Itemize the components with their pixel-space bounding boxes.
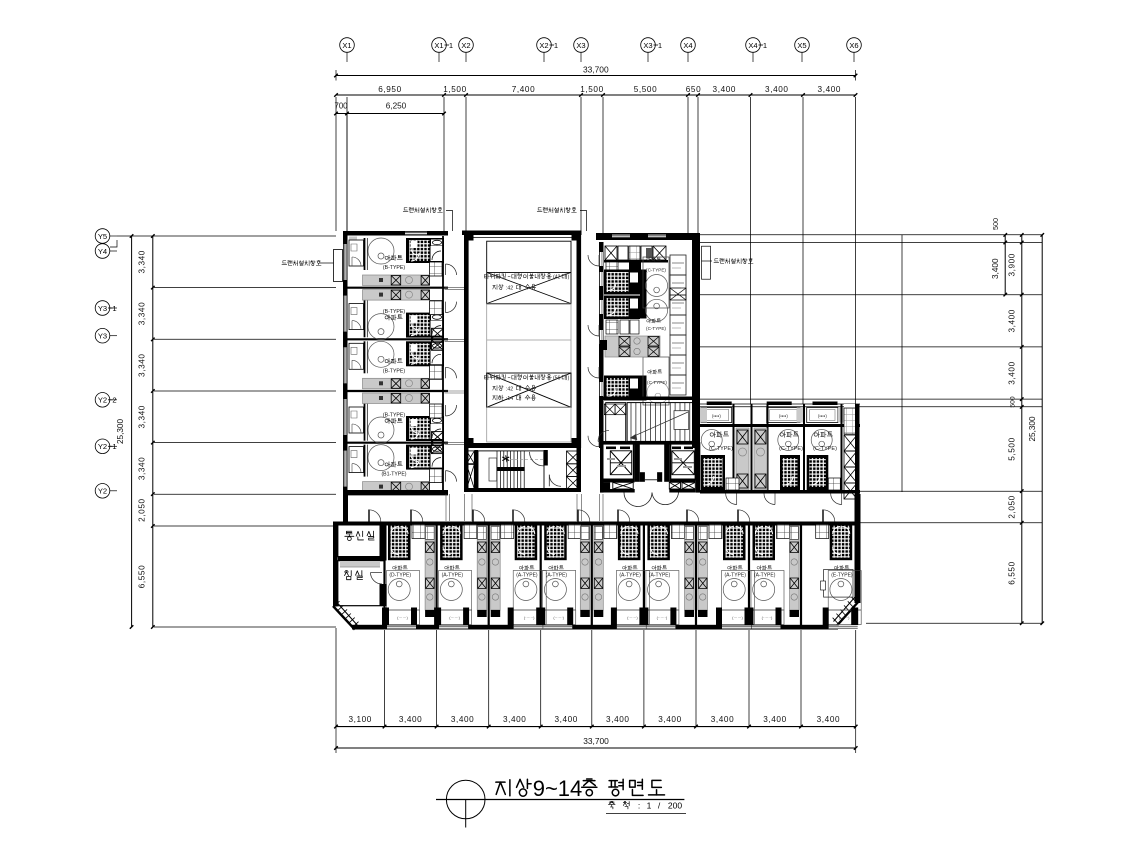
svg-text:(······): (······) [553,615,564,620]
svg-text:25,300: 25,300 [1028,416,1037,441]
svg-text:5,500: 5,500 [634,85,658,94]
svg-text:(C-TYPE): (C-TYPE) [647,380,667,385]
svg-text:(B-TYPE): (B-TYPE) [383,309,405,315]
svg-text:(A-TYPE): (A-TYPE) [754,573,776,579]
svg-text:(A-TYPE): (A-TYPE) [546,573,568,579]
svg-text:500: 500 [1009,396,1016,408]
svg-text:(C-TYPE): (C-TYPE) [709,446,733,452]
svg-text::14: :14 [506,396,513,402]
svg-text:6,250: 6,250 [386,102,407,111]
svg-text:3,400: 3,400 [399,715,423,724]
svg-text:(······): (······) [524,615,535,620]
svg-text::42: :42 [506,285,513,291]
svg-text:): ) [568,275,570,281]
svg-text:3,400: 3,400 [711,715,735,724]
svg-text::42: :42 [506,386,513,392]
svg-text:3,340: 3,340 [138,302,147,326]
svg-text:3,400: 3,400 [765,85,789,94]
svg-text:3,340: 3,340 [138,250,147,274]
svg-text:650: 650 [686,85,701,94]
svg-text:X3: X3 [643,41,652,50]
svg-text::: : [638,801,640,811]
svg-text:(A-TYPE): (A-TYPE) [516,573,538,579]
svg-text:3,400: 3,400 [658,715,682,724]
svg-text:3,340: 3,340 [138,353,147,377]
svg-text:X2: X2 [461,41,470,50]
svg-text:3,340: 3,340 [138,405,147,429]
svg-text:3,400: 3,400 [606,715,630,724]
svg-text:3,400: 3,400 [1007,309,1016,333]
svg-text:(▪▪▪▪): (▪▪▪▪) [779,414,788,419]
svg-text:X6: X6 [849,41,858,50]
svg-text:Y2: Y2 [98,396,107,405]
svg-text:25,300: 25,300 [116,419,125,444]
svg-text:(B1-TYPE): (B1-TYPE) [381,472,406,478]
svg-text:3,400: 3,400 [817,715,841,724]
svg-text:1: 1 [658,41,662,50]
svg-text:6,550: 6,550 [1007,561,1016,585]
svg-text:3,400: 3,400 [554,715,578,724]
svg-text:6,550: 6,550 [138,565,147,589]
svg-text:Y3: Y3 [98,304,107,313]
svg-text:(D-TYPE): (D-TYPE) [389,573,411,579]
svg-text:1,500: 1,500 [443,85,467,94]
svg-text:1: 1 [647,801,652,811]
svg-text:Y4: Y4 [98,247,107,256]
svg-text:X5: X5 [797,41,806,50]
svg-text:6,950: 6,950 [378,85,402,94]
svg-text:1: 1 [449,41,453,50]
svg-text:1: 1 [554,41,558,50]
svg-text:(······): (······) [449,615,460,620]
svg-text:3,400: 3,400 [451,715,475,724]
svg-text:(56: (56 [553,376,561,382]
svg-text:7,400: 7,400 [512,85,536,94]
svg-text:(▪▪▪▪): (▪▪▪▪) [818,414,827,419]
svg-text:9~14: 9~14 [533,776,583,801]
svg-text:(B-TYPE): (B-TYPE) [383,265,405,271]
svg-text:Y5: Y5 [98,232,107,241]
svg-text:X4: X4 [683,41,692,50]
svg-text:Y2: Y2 [98,442,107,451]
svg-text:X2: X2 [539,41,548,50]
svg-text:1,500: 1,500 [580,85,604,94]
svg-text:700: 700 [334,102,348,111]
svg-text:1: 1 [763,41,767,50]
svg-text:(······): (······) [762,615,773,620]
svg-text:200: 200 [668,801,682,811]
svg-text:): ) [568,376,570,382]
svg-text:(42: (42 [553,275,561,281]
svg-text:(······): (······) [627,615,638,620]
svg-text:3,900: 3,900 [1007,253,1016,277]
svg-text:5,500: 5,500 [1007,437,1016,461]
svg-text:(A-TYPE): (A-TYPE) [442,573,464,579]
svg-text:(▪▪▪▪): (▪▪▪▪) [712,414,721,419]
svg-text:(······): (······) [397,615,408,620]
svg-text:X1: X1 [434,41,443,50]
svg-text:Y2: Y2 [98,487,107,496]
svg-text:(C-TYPE): (C-TYPE) [779,446,803,452]
svg-text:500: 500 [991,218,1000,230]
svg-text:2,050: 2,050 [138,498,147,521]
svg-text:X1: X1 [342,41,351,50]
svg-text:(C-TYPE): (C-TYPE) [646,268,666,273]
svg-text:X4: X4 [748,41,757,50]
svg-text:2,050: 2,050 [1007,495,1016,519]
svg-text:(······): (······) [657,615,668,620]
svg-text:3,340: 3,340 [138,457,147,481]
svg-text:Y3: Y3 [98,332,107,341]
svg-text:(B-TYPE): (B-TYPE) [383,368,405,374]
svg-text:(C-TYPE): (C-TYPE) [813,446,837,452]
svg-text:3,400: 3,400 [713,85,737,94]
svg-text:(······): (······) [732,615,743,620]
svg-text:(······): (······) [839,615,850,620]
svg-text:3,400: 3,400 [818,85,842,94]
svg-text:3,400: 3,400 [503,715,527,724]
svg-text:(A-TYPE): (A-TYPE) [619,573,641,579]
svg-text:3,100: 3,100 [348,715,372,724]
svg-text:(C-TYPE): (C-TYPE) [646,326,666,331]
svg-text:3,400: 3,400 [1007,361,1016,385]
svg-text:(E-TYPE): (E-TYPE) [831,573,853,579]
svg-text:(A-TYPE): (A-TYPE) [649,573,671,579]
svg-text:3,400: 3,400 [991,258,1000,279]
svg-text:(B-TYPE): (B-TYPE) [383,413,405,419]
svg-text:X3: X3 [576,41,585,50]
svg-text:33,700: 33,700 [583,736,609,746]
svg-text:33,700: 33,700 [583,65,609,75]
svg-text:(A-TYPE): (A-TYPE) [725,573,747,579]
svg-text:3,400: 3,400 [763,715,787,724]
